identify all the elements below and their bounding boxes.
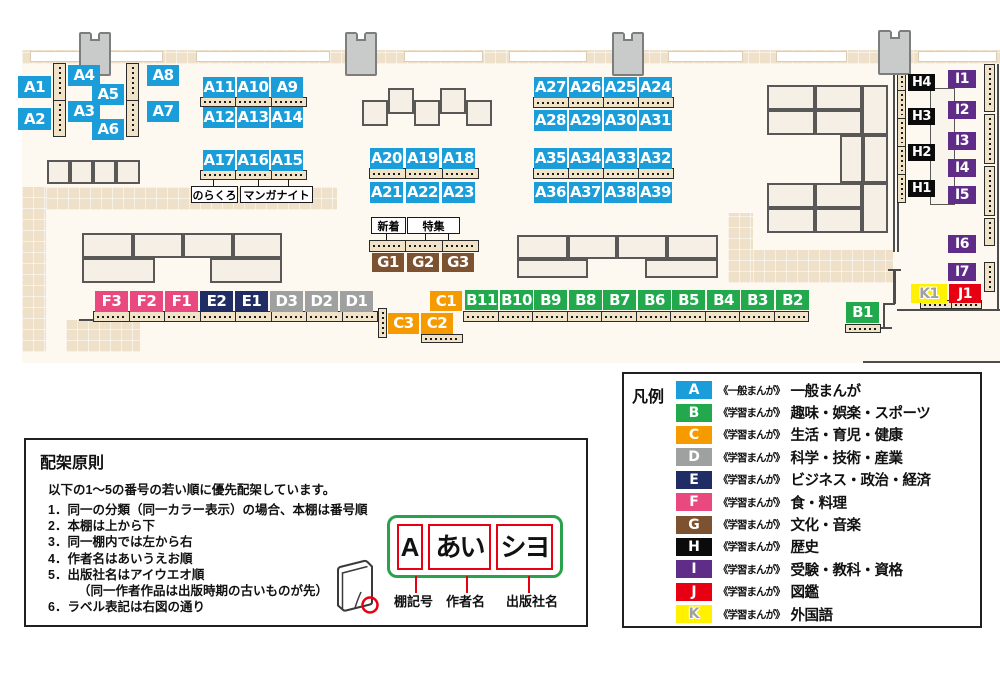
- pillar: [612, 32, 644, 76]
- bookshelf-segment: [406, 169, 442, 178]
- table-block: [362, 100, 388, 126]
- shelf-label-B2: B2: [776, 290, 809, 310]
- bookshelf-segment: [54, 101, 65, 137]
- shelf-label-A20: A20: [370, 148, 403, 169]
- shelf-label-A24: A24: [639, 77, 672, 98]
- rules-item: （同一作者作品は出版時期の古いものが先）: [48, 583, 367, 599]
- bookshelf: [93, 311, 378, 322]
- shelf-label-H4: H4: [908, 74, 935, 91]
- legend-chip-A: A: [676, 381, 712, 399]
- bookshelf: [421, 334, 463, 343]
- rules-item: 1．同一の分類（同一カラー表示）の場合、本棚は番号順: [48, 502, 367, 518]
- shelf-label-A7: A7: [147, 101, 179, 122]
- pillar: [878, 30, 911, 75]
- shelf-label-E2: E2: [200, 291, 233, 312]
- table-block: [862, 85, 888, 135]
- bookshelf-segment: [422, 335, 462, 342]
- rules-item: 6．ラベル表記は右図の通り: [48, 599, 367, 615]
- callout-pointer: [386, 233, 387, 240]
- bookshelf: [378, 308, 387, 338]
- legend-prefix: 《学習まんが》: [718, 405, 785, 420]
- bookshelf: [533, 168, 674, 179]
- bookshelf-segment: [236, 98, 271, 106]
- bookshelf-segment: [985, 115, 994, 163]
- legend-chip-J: J: [676, 583, 712, 601]
- table-block: [70, 160, 93, 184]
- legend-row-B: B《学習まんが》趣味・娯楽・スポーツ: [676, 401, 931, 423]
- floor-map-page: A1A2A4A5A3A6A8A7A11A10A9A12A13A14A17A16A…: [0, 0, 1000, 700]
- floor-strip: [753, 250, 893, 283]
- table-block: [862, 183, 888, 233]
- floor-strip: [66, 320, 140, 352]
- bookshelf-segment: [706, 312, 741, 321]
- bookshelf: [200, 170, 307, 180]
- wall-window: [668, 51, 743, 62]
- bookshelf: [984, 218, 995, 246]
- bookshelf-segment: [569, 98, 604, 107]
- bookshelf: [369, 240, 479, 252]
- bookshelf-segment: [236, 171, 271, 179]
- shelf-label-A34: A34: [569, 148, 602, 169]
- bookshelf-segment: [898, 175, 905, 202]
- rules-title: 配架原則: [40, 449, 104, 473]
- shelf-label-A8: A8: [147, 65, 179, 86]
- legend-chip-F: F: [676, 493, 712, 511]
- rules-item: 3．同一棚内では左から右: [48, 534, 367, 550]
- legend-prefix: 《学習まんが》: [718, 539, 785, 554]
- table-block: [440, 88, 466, 114]
- legend-prefix: 《学習まんが》: [718, 562, 785, 577]
- shelf-label-C3: C3: [388, 313, 419, 334]
- pillar-notch: [356, 32, 366, 41]
- shelf-label-A4: A4: [68, 65, 100, 86]
- table-block: [517, 259, 588, 278]
- bookshelf-segment: [568, 312, 603, 321]
- bookshelf: [53, 63, 66, 137]
- bookshelf-segment: [130, 312, 166, 321]
- bookshelf-segment: [604, 98, 639, 107]
- shelf-label-F1: F1: [165, 291, 198, 312]
- shelf-label-F3: F3: [95, 291, 128, 312]
- bookshelf-segment: [602, 312, 637, 321]
- shelf-label-G3: G3: [442, 253, 474, 272]
- callout-pointer: [213, 179, 214, 187]
- legend-category-label: ビジネス・政治・経済: [791, 469, 931, 490]
- table-block: [815, 183, 862, 208]
- bookshelf-segment: [775, 312, 809, 321]
- bookshelf-segment: [639, 98, 673, 107]
- shelf-label-J1: J1: [949, 284, 981, 303]
- bookshelf: [897, 62, 906, 203]
- rules-item: 4．作者名はあいうえお順: [48, 551, 367, 567]
- table-block: [82, 233, 133, 258]
- bookshelf: [369, 168, 479, 179]
- shelf-label-I1: I1: [948, 70, 976, 88]
- table-block: [133, 233, 183, 258]
- label-example-plate: A あい シヨ: [387, 515, 563, 578]
- shelf-label-A35: A35: [534, 148, 567, 169]
- rules-item: 5．出版社名はアイウエオ順: [48, 567, 367, 583]
- shelf-label-A38: A38: [604, 182, 637, 203]
- legend-row-E: E《学習まんが》ビジネス・政治・経済: [676, 469, 931, 491]
- pillar-notch: [890, 30, 900, 39]
- bookshelf-segment: [94, 312, 130, 321]
- bookshelf-segment: [343, 312, 378, 321]
- map-annotation: マンガナイト: [240, 186, 313, 203]
- shelf-label-I4: I4: [948, 159, 976, 177]
- shelf-label-A13: A13: [237, 107, 269, 128]
- shelf-label-I2: I2: [948, 101, 976, 119]
- bookshelf-segment: [272, 312, 308, 321]
- legend-row-J: J《学習まんが》図鑑: [676, 581, 931, 603]
- legend-prefix: 《学習まんが》: [718, 517, 785, 532]
- bookshelf: [984, 262, 995, 292]
- legend-chip-G: G: [676, 516, 712, 534]
- bookshelf-segment: [499, 312, 534, 321]
- shelf-label-B5: B5: [672, 290, 705, 310]
- floor-strip: [22, 187, 46, 352]
- shelf-label-A21: A21: [370, 182, 403, 203]
- legend-category-label: 趣味・娯楽・スポーツ: [791, 402, 931, 423]
- shelf-label-F2: F2: [130, 291, 163, 312]
- shelf-label-K1: K1: [911, 284, 947, 303]
- table-block: [388, 88, 414, 114]
- callout-pointer: [288, 179, 289, 187]
- bookshelf-segment: [534, 169, 569, 178]
- bookshelf: [200, 97, 307, 107]
- bookshelf: [533, 97, 674, 108]
- legend-prefix: 《学習まんが》: [718, 584, 785, 599]
- legend-row-F: F《学習まんが》食・料理: [676, 491, 931, 513]
- map-annotation: のらくろ: [191, 186, 238, 203]
- shelf-label-A29: A29: [569, 110, 602, 131]
- shelf-label-H2: H2: [908, 144, 935, 161]
- floor-map: A1A2A4A5A3A6A8A7A11A10A9A12A13A14A17A16A…: [0, 0, 1000, 370]
- shelf-label-A10: A10: [237, 77, 269, 98]
- bookshelf: [845, 324, 881, 333]
- wall-line: [883, 303, 885, 329]
- legend-category-label: 文化・音楽: [791, 514, 861, 535]
- legend-category-label: 外国語: [791, 604, 833, 625]
- floor-strip: [728, 213, 753, 283]
- shelf-label-A6: A6: [92, 119, 124, 140]
- shelf-label-A31: A31: [639, 110, 672, 131]
- bookshelf-segment: [639, 169, 673, 178]
- bookshelf-segment: [985, 167, 994, 215]
- table-block: [568, 235, 617, 259]
- bookshelf-segment: [307, 312, 343, 321]
- callout-pointer: [425, 233, 426, 240]
- shelf-label-H3: H3: [908, 108, 935, 125]
- shelf-label-B3: B3: [741, 290, 774, 310]
- bookshelf-segment: [54, 64, 65, 101]
- bookshelf-segment: [127, 101, 138, 137]
- shelf-label-B7: B7: [603, 290, 636, 310]
- shelf-label-D3: D3: [270, 291, 303, 312]
- wall-window: [918, 51, 997, 62]
- legend-prefix: 《学習まんが》: [718, 450, 785, 465]
- shelf-label-A27: A27: [534, 77, 567, 98]
- bookshelf-segment: [201, 171, 236, 179]
- bookshelf-segment: [604, 169, 639, 178]
- table-block: [210, 258, 282, 283]
- table-block: [815, 85, 862, 110]
- legend-prefix: 《学習まんが》: [718, 495, 785, 510]
- shelf-label-A28: A28: [534, 110, 567, 131]
- bookshelf-segment: [569, 169, 604, 178]
- bookshelf-segment: [201, 312, 237, 321]
- pillar-notch: [90, 32, 100, 41]
- shelf-label-A17: A17: [203, 150, 235, 171]
- legend-row-C: C《学習まんが》生活・育児・健康: [676, 424, 931, 446]
- bookshelf-segment: [443, 241, 478, 251]
- table-block: [815, 208, 862, 233]
- wall-window: [776, 51, 847, 62]
- bookshelf-segment: [637, 312, 672, 321]
- legend-chip-K: K: [676, 605, 712, 623]
- table-block: [840, 135, 863, 183]
- bookshelf-segment: [272, 171, 306, 179]
- pillar-notch: [623, 32, 633, 41]
- table-block: [767, 110, 815, 135]
- legend-chip-H: H: [676, 538, 712, 556]
- table-block: [815, 110, 862, 135]
- table-block: [767, 208, 815, 233]
- legend-chip-B: B: [676, 404, 712, 422]
- legend-title: 凡例: [632, 383, 664, 407]
- shelf-label-I5: I5: [948, 186, 976, 204]
- callout-pointer: [448, 233, 449, 240]
- shelf-label-B1: B1: [846, 302, 879, 323]
- table-block: [667, 235, 718, 259]
- bookshelf-segment: [370, 169, 406, 178]
- pillar: [345, 32, 377, 76]
- bookshelf-segment: [898, 91, 905, 119]
- shelf-label-A15: A15: [271, 150, 303, 171]
- wall-window: [404, 51, 483, 62]
- shelf-label-A25: A25: [604, 77, 637, 98]
- caption-author: 作者名: [446, 591, 485, 610]
- bookshelf-segment: [985, 219, 994, 245]
- legend-row-I: I《学習まんが》受験・教科・資格: [676, 558, 931, 580]
- wall-line: [997, 64, 999, 310]
- callout-pointer: [258, 179, 259, 187]
- legend-row-G: G《学習まんが》文化・音楽: [676, 513, 931, 535]
- shelf-label-A33: A33: [604, 148, 637, 169]
- wall-window: [196, 51, 330, 62]
- shelf-label-B10: B10: [500, 290, 533, 310]
- legend-box: 凡例 A《一般まんが》一般まんがB《学習まんが》趣味・娯楽・スポーツC《学習まん…: [622, 372, 982, 628]
- shelf-label-A23: A23: [442, 182, 475, 203]
- bookshelf-segment: [165, 312, 201, 321]
- legend-prefix: 《学習まんが》: [718, 607, 785, 622]
- table-block: [414, 100, 440, 126]
- table-block: [233, 233, 282, 258]
- bookshelf-segment: [370, 241, 406, 251]
- shelf-label-C1: C1: [430, 291, 462, 311]
- bookshelf-segment: [985, 65, 994, 111]
- label-shelf-code: A: [397, 524, 423, 570]
- shelf-label-A16: A16: [237, 150, 269, 171]
- shelf-label-D1: D1: [340, 291, 373, 312]
- table-block: [116, 160, 140, 184]
- table-block: [617, 235, 667, 259]
- bookshelf-segment: [406, 241, 442, 251]
- bookshelf-segment: [533, 312, 568, 321]
- shelf-label-A12: A12: [203, 107, 235, 128]
- wall-line: [897, 309, 1000, 311]
- rules-list: 1．同一の分類（同一カラー表示）の場合、本棚は番号順2．本棚は上から下3．同一棚…: [48, 502, 367, 615]
- shelf-label-A37: A37: [569, 182, 602, 203]
- shelf-label-A2: A2: [18, 108, 51, 130]
- shelf-label-B9: B9: [534, 290, 567, 310]
- shelf-label-B11: B11: [465, 290, 498, 310]
- table-block: [47, 160, 70, 184]
- wall-window: [509, 51, 587, 62]
- label-publisher-name: シヨ: [496, 524, 553, 570]
- shelf-label-A39: A39: [639, 182, 672, 203]
- shelf-label-G1: G1: [372, 253, 404, 272]
- legend-chip-C: C: [676, 426, 712, 444]
- shelf-label-I6: I6: [948, 235, 976, 253]
- legend-category-label: 食・料理: [791, 492, 847, 513]
- table-block: [82, 258, 155, 283]
- legend-category-label: 科学・技術・産業: [791, 447, 903, 468]
- shelf-label-A36: A36: [534, 182, 567, 203]
- bookshelf-segment: [236, 312, 272, 321]
- shelf-label-G2: G2: [407, 253, 439, 272]
- wall-line: [863, 361, 1000, 363]
- bookshelf-segment: [985, 263, 994, 291]
- shelf-label-D2: D2: [305, 291, 338, 312]
- legend-chip-D: D: [676, 448, 712, 466]
- legend-prefix: 《学習まんが》: [718, 472, 785, 487]
- table-block: [517, 235, 568, 259]
- shelf-label-B8: B8: [569, 290, 602, 310]
- bookshelf-segment: [898, 147, 905, 175]
- table-block: [93, 160, 116, 184]
- legend-chip-I: I: [676, 560, 712, 578]
- legend-row-H: H《学習まんが》歴史: [676, 536, 931, 558]
- bookshelf: [984, 114, 995, 164]
- legend-category-label: 歴史: [791, 536, 819, 557]
- shelf-label-I7: I7: [948, 263, 976, 281]
- bookshelf-segment: [534, 98, 569, 107]
- table-block: [767, 183, 815, 208]
- shelf-label-B6: B6: [638, 290, 671, 310]
- bookshelf-segment: [898, 119, 905, 147]
- label-author-name: あい: [428, 524, 491, 570]
- bookshelf-segment: [379, 309, 386, 337]
- bookshelf-segment: [671, 312, 706, 321]
- legend-category-label: 図鑑: [791, 581, 819, 602]
- shelf-label-E1: E1: [235, 291, 268, 312]
- map-annotation: 特集: [407, 217, 460, 234]
- bookshelf-segment: [846, 325, 880, 332]
- legend-row-A: A《一般まんが》一般まんが: [676, 379, 931, 401]
- bookshelf-segment: [740, 312, 775, 321]
- shelf-label-A18: A18: [442, 148, 475, 169]
- legend-row-K: K《学習まんが》外国語: [676, 603, 931, 625]
- rules-item: 2．本棚は上から下: [48, 518, 367, 534]
- shelf-label-A11: A11: [203, 77, 235, 98]
- legend-prefix: 《学習まんが》: [718, 427, 785, 442]
- bookshelf: [126, 63, 139, 137]
- caption-shelf-code: 棚記号: [394, 591, 433, 610]
- rules-intro: 以下の1～5の番号の若い順に優先配架しています。: [48, 479, 335, 498]
- bookshelf-segment: [201, 98, 236, 106]
- caption-publisher: 出版社名: [506, 591, 558, 610]
- bookshelf-segment: [127, 64, 138, 101]
- legend-rows: A《一般まんが》一般まんがB《学習まんが》趣味・娯楽・スポーツC《学習まんが》生…: [676, 379, 931, 625]
- bookshelf: [984, 166, 995, 216]
- shelf-label-A30: A30: [604, 110, 637, 131]
- shelf-label-A26: A26: [569, 77, 602, 98]
- shelf-label-B4: B4: [707, 290, 740, 310]
- shelf-label-C2: C2: [421, 313, 453, 334]
- legend-chip-E: E: [676, 471, 712, 489]
- book-icon: [330, 556, 384, 614]
- legend-category-label: 一般まんが: [791, 380, 861, 401]
- shelf-label-A14: A14: [271, 107, 303, 128]
- shelf-label-A19: A19: [406, 148, 439, 169]
- shelf-label-A1: A1: [18, 76, 51, 98]
- legend-category-label: 生活・育児・健康: [791, 424, 903, 445]
- shelf-label-A9: A9: [271, 77, 303, 98]
- shelf-label-A22: A22: [406, 182, 439, 203]
- shelf-label-H1: H1: [908, 180, 935, 197]
- table-block: [466, 100, 492, 126]
- bookshelf-segment: [443, 169, 478, 178]
- bookshelf: [984, 64, 995, 112]
- table-block: [767, 85, 815, 110]
- bookshelf: [463, 311, 809, 322]
- shelf-label-I3: I3: [948, 132, 976, 150]
- map-annotation: 新着: [371, 217, 406, 234]
- legend-row-D: D《学習まんが》科学・技術・産業: [676, 446, 931, 468]
- legend-category-label: 受験・教科・資格: [791, 559, 903, 580]
- table-block: [645, 259, 718, 278]
- bookshelf-segment: [464, 312, 499, 321]
- table-block: [863, 135, 888, 183]
- legend-prefix: 《一般まんが》: [718, 383, 785, 398]
- table-block: [183, 233, 233, 258]
- shelf-label-A32: A32: [639, 148, 672, 169]
- wall-line: [893, 271, 896, 304]
- bookshelf-segment: [272, 98, 306, 106]
